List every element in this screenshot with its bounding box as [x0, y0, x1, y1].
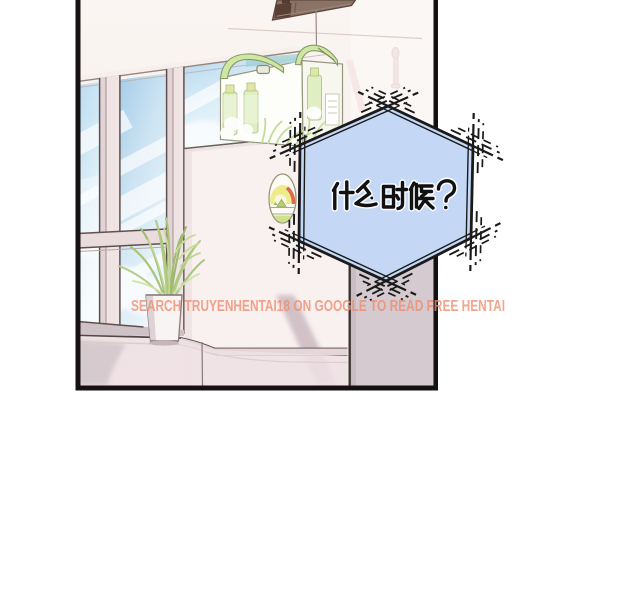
svg-text:SEARCH TRUYENHENTAI18 ON GOOGL: SEARCH TRUYENHENTAI18 ON GOOGLE TO READ …: [131, 298, 505, 315]
